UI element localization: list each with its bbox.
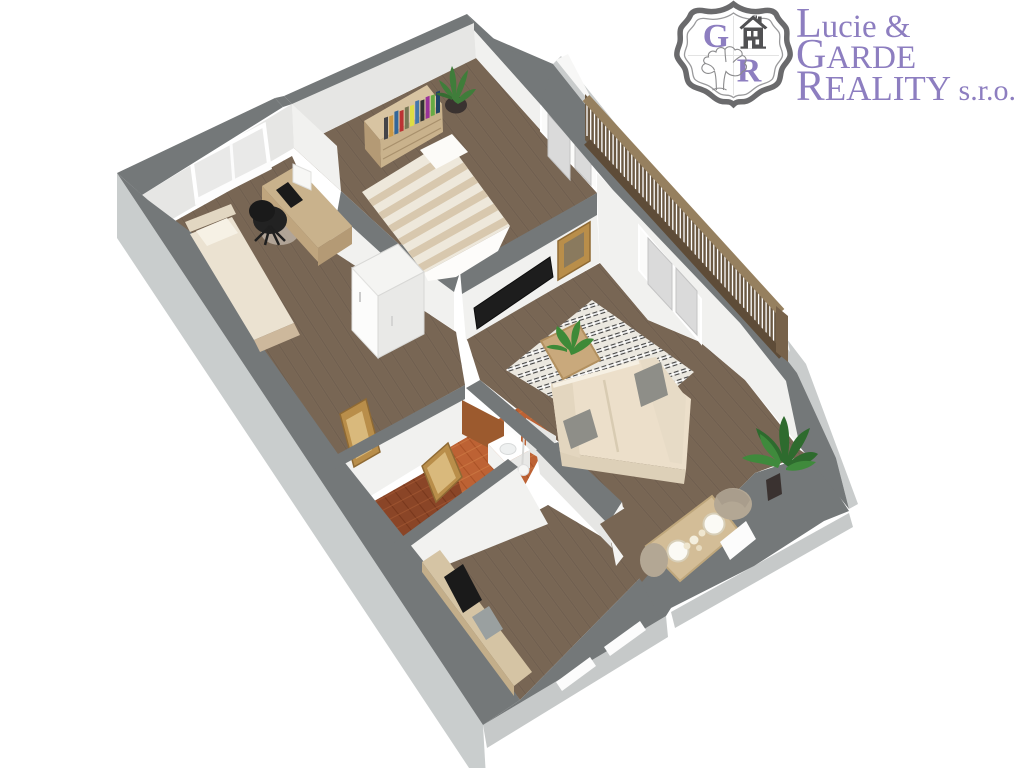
svg-text:R: R: [737, 53, 762, 90]
